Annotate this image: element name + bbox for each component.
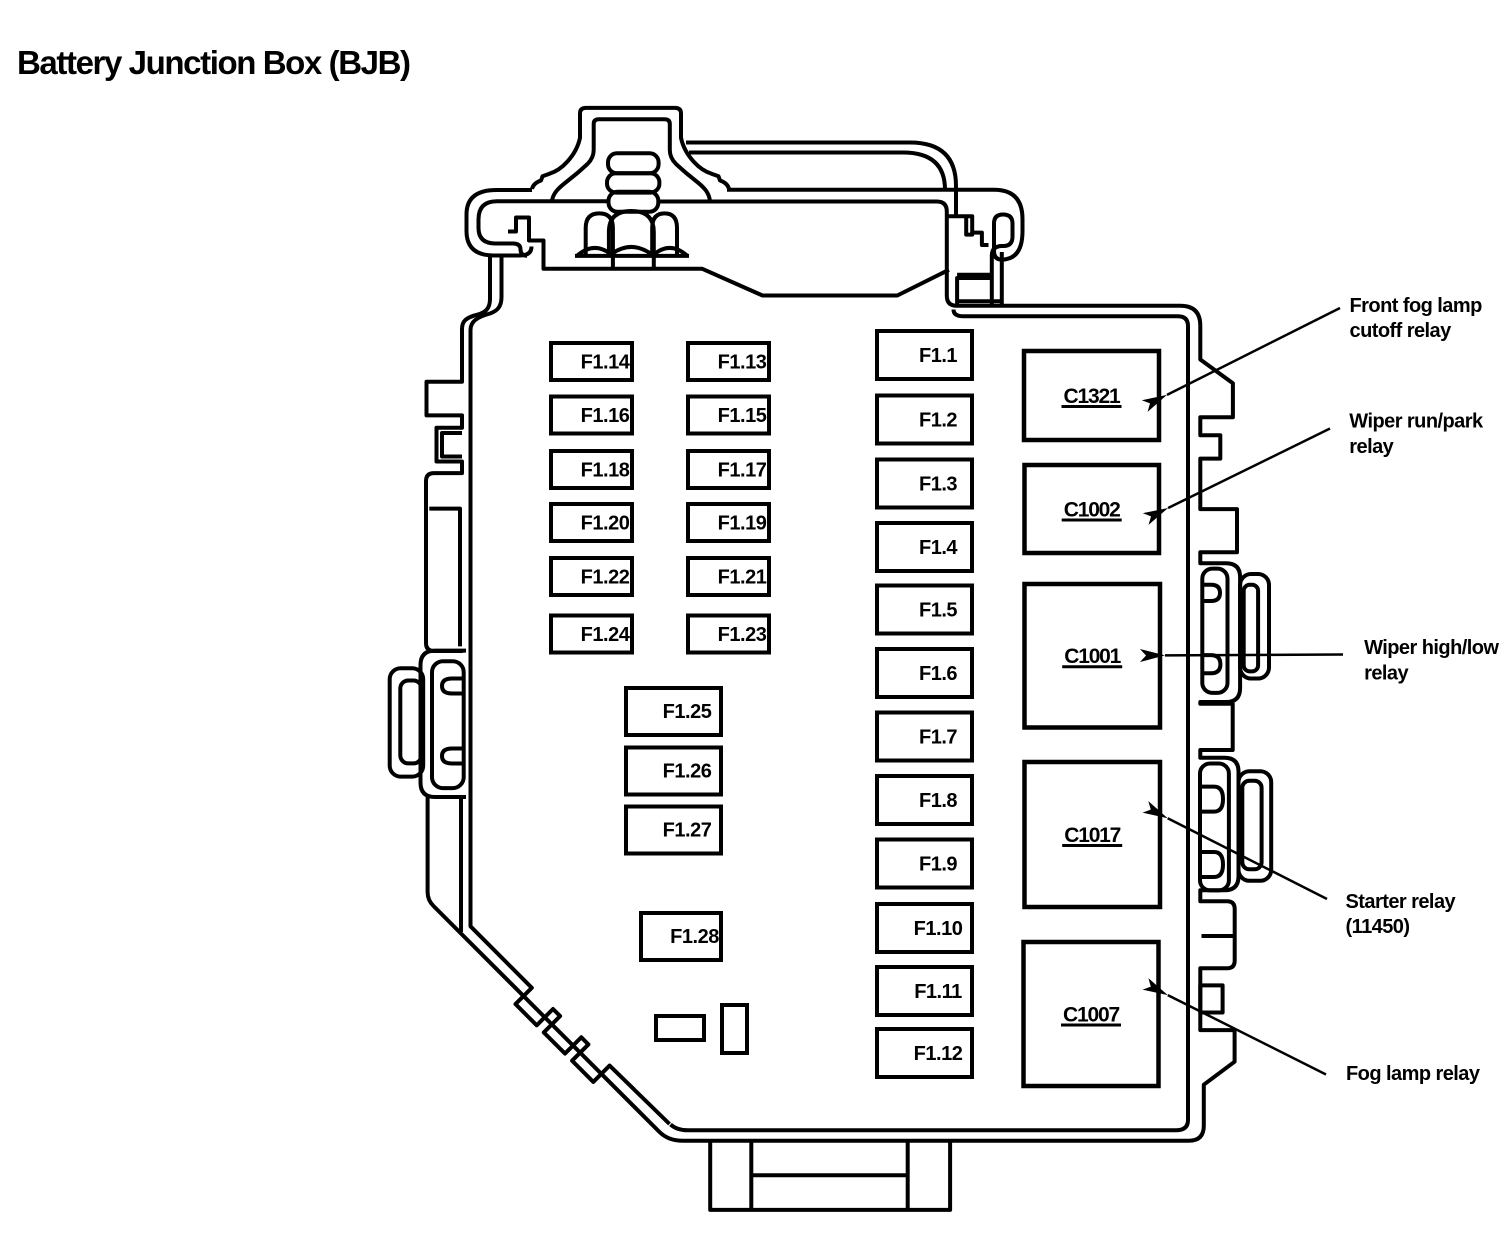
svg-text:C1321: C1321 <box>1064 385 1121 408</box>
svg-text:C1007: C1007 <box>1063 1004 1119 1027</box>
svg-text:F1.2: F1.2 <box>919 410 957 432</box>
svg-text:F1.22: F1.22 <box>581 567 630 589</box>
svg-text:Front fog lamp: Front fog lamp <box>1350 295 1483 317</box>
svg-text:Battery Junction Box (BJB): Battery Junction Box (BJB) <box>17 44 410 81</box>
svg-text:F1.27: F1.27 <box>663 820 712 842</box>
svg-text:F1.21: F1.21 <box>718 567 767 589</box>
svg-text:F1.11: F1.11 <box>914 981 962 1003</box>
svg-text:Wiper high/low: Wiper high/low <box>1364 637 1499 659</box>
svg-text:F1.9: F1.9 <box>919 854 957 876</box>
svg-text:(11450): (11450) <box>1346 916 1410 938</box>
svg-text:F1.28: F1.28 <box>670 926 719 948</box>
svg-text:F1.8: F1.8 <box>919 790 957 812</box>
svg-text:F1.19: F1.19 <box>718 513 767 535</box>
svg-text:C1001: C1001 <box>1064 645 1121 668</box>
svg-text:F1.3: F1.3 <box>919 474 957 496</box>
svg-text:F1.25: F1.25 <box>663 701 712 723</box>
svg-text:relay: relay <box>1364 662 1409 684</box>
svg-text:C1002: C1002 <box>1064 499 1120 522</box>
svg-text:F1.10: F1.10 <box>914 918 963 940</box>
svg-text:F1.5: F1.5 <box>919 600 957 622</box>
svg-text:relay: relay <box>1349 436 1394 458</box>
svg-text:F1.24: F1.24 <box>581 624 631 646</box>
svg-text:Fog lamp relay: Fog lamp relay <box>1346 1063 1481 1085</box>
svg-text:F1.17: F1.17 <box>718 460 767 482</box>
svg-text:F1.26: F1.26 <box>663 761 712 783</box>
svg-text:F1.7: F1.7 <box>919 727 957 749</box>
svg-text:F1.12: F1.12 <box>914 1043 963 1065</box>
svg-text:Wiper run/park: Wiper run/park <box>1349 411 1484 433</box>
svg-text:F1.6: F1.6 <box>919 663 957 685</box>
svg-text:F1.1: F1.1 <box>919 345 957 367</box>
svg-text:cutoff relay: cutoff relay <box>1350 320 1453 342</box>
svg-text:F1.14: F1.14 <box>581 352 631 374</box>
svg-text:F1.23: F1.23 <box>718 624 767 646</box>
svg-text:F1.20: F1.20 <box>581 513 630 535</box>
svg-text:F1.16: F1.16 <box>581 405 630 427</box>
svg-text:F1.18: F1.18 <box>581 460 630 482</box>
svg-text:F1.13: F1.13 <box>718 352 767 374</box>
svg-text:F1.4: F1.4 <box>919 537 958 559</box>
svg-text:C1017: C1017 <box>1064 824 1120 847</box>
svg-text:F1.15: F1.15 <box>718 405 767 427</box>
svg-text:Starter relay: Starter relay <box>1346 891 1457 913</box>
